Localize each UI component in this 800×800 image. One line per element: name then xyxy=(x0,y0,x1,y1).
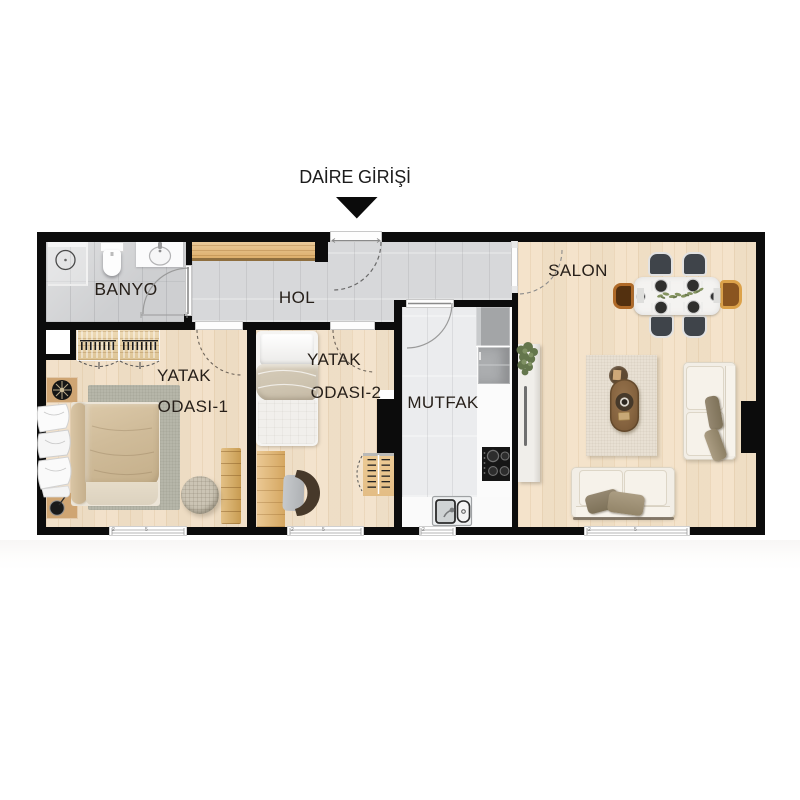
svg-text:2: 2 xyxy=(588,527,591,533)
svg-text:2: 2 xyxy=(112,527,115,533)
svg-text:5: 5 xyxy=(145,527,148,533)
svg-text:2: 2 xyxy=(422,527,425,533)
svg-text:5: 5 xyxy=(322,527,325,533)
svg-text:2: 2 xyxy=(291,527,294,533)
svg-text:5: 5 xyxy=(634,527,637,533)
